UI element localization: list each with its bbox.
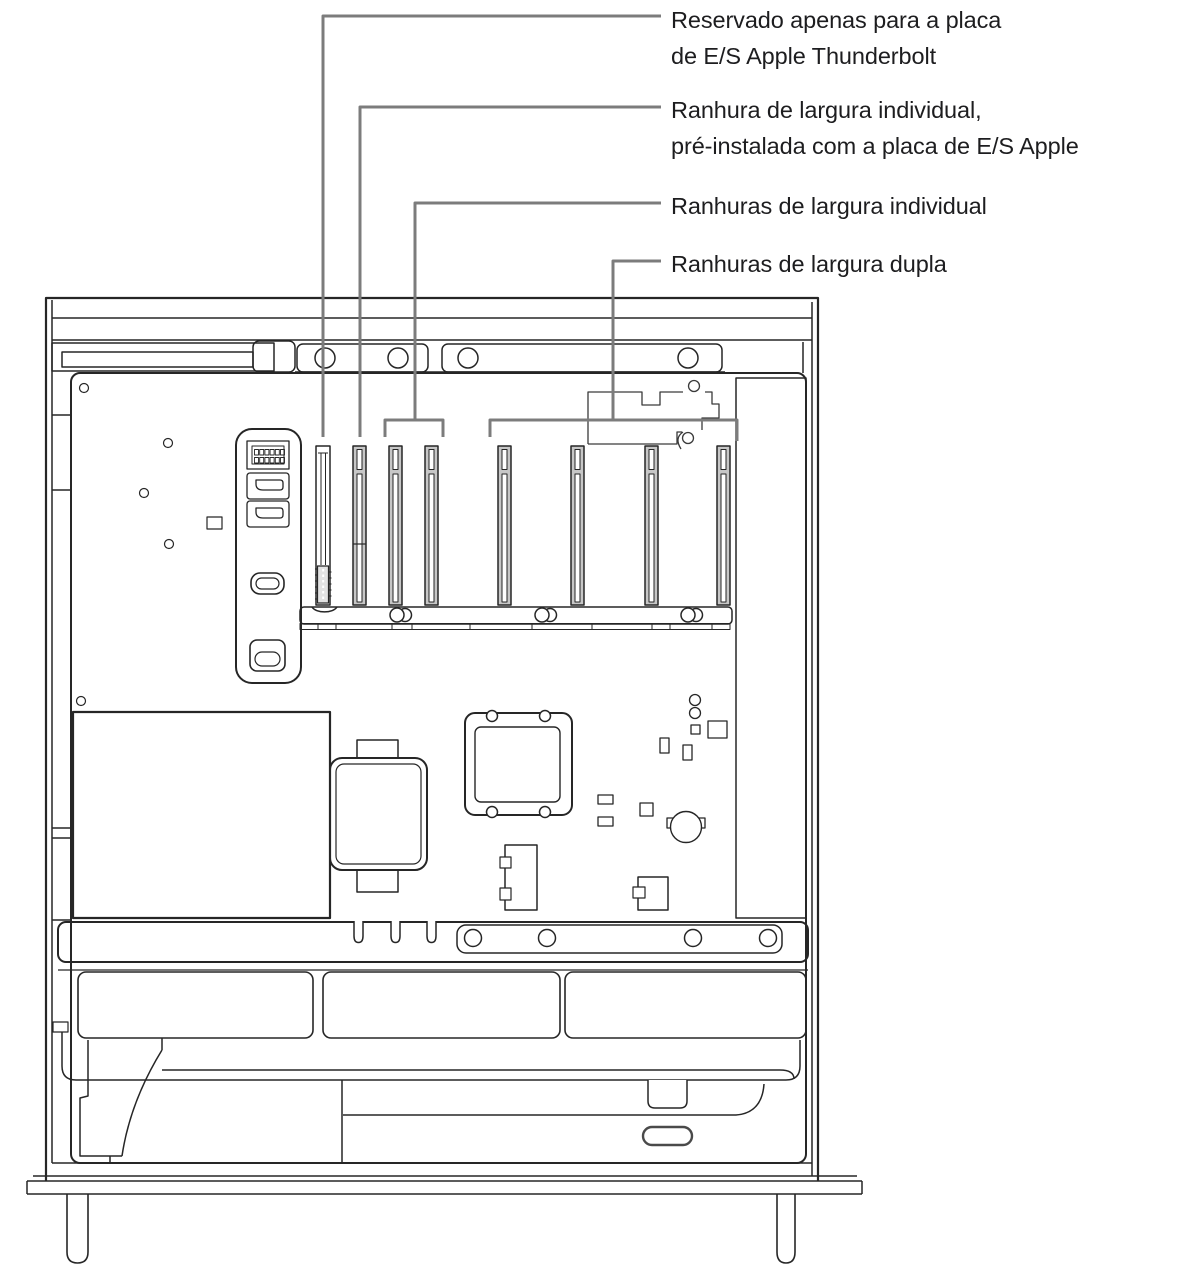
thunderbolt-port	[250, 640, 285, 671]
pcie-slot-4	[425, 446, 438, 605]
foot-right	[777, 1194, 795, 1263]
cpu-plate	[465, 711, 572, 818]
callout-label-line: pré-instalada com a placa de E/S Apple	[671, 128, 1079, 164]
hdmi-port	[247, 501, 289, 527]
callout-label-single-width-preinstalled: Ranhura de largura individual, pré-insta…	[671, 92, 1079, 164]
callout-label-single-width-slots: Ranhuras de largura individual	[671, 188, 987, 224]
callout-label-line: de E/S Apple Thunderbolt	[671, 38, 1001, 74]
lock-pill	[643, 1127, 692, 1145]
slot-rail	[300, 607, 732, 630]
pcie-slot-5	[498, 446, 511, 605]
pcie-slot-6	[571, 446, 584, 605]
callout-label-thunderbolt-reserved: Reservado apenas para a placa de E/S App…	[671, 2, 1001, 74]
callout-bracket-single-slots	[385, 420, 443, 437]
callout-label-line: Ranhura de largura individual,	[671, 92, 1079, 128]
hdmi-port	[247, 473, 289, 499]
pcie-slot-1-thunderbolt	[315, 446, 332, 605]
callout-bracket-double-slots	[490, 420, 737, 441]
io-card	[236, 429, 301, 683]
fan-bays	[78, 972, 806, 1038]
grid-connector	[247, 441, 289, 469]
heatsink-bracket	[330, 740, 427, 892]
callout-lines	[323, 16, 737, 441]
pcie-slot-2	[353, 446, 366, 605]
panel-screw-holes	[77, 384, 223, 706]
mac-pro-side-diagram: Reservado apenas para a placa de E/S App…	[0, 0, 1197, 1269]
feet	[67, 1194, 795, 1263]
callout-label-line: Ranhuras de largura dupla	[671, 246, 947, 282]
pcie-slot-7	[645, 446, 658, 605]
lower-ducting	[52, 1032, 812, 1163]
latch-outline	[588, 381, 719, 450]
power-supply	[73, 712, 330, 918]
rail-screws	[390, 608, 703, 622]
usb-c-port	[251, 573, 284, 594]
base-plinth	[27, 1176, 862, 1194]
pcie-slot-3	[389, 446, 402, 605]
right-column	[736, 378, 806, 918]
mac-pro-illustration	[0, 0, 1197, 1269]
aux-connector	[633, 877, 668, 910]
battery	[667, 812, 705, 843]
bottom-rail	[58, 921, 808, 970]
callout-label-line: Ranhuras de largura individual	[671, 188, 987, 224]
pcie-slot-8	[717, 446, 730, 605]
foot-left	[67, 1194, 88, 1263]
callout-line-single-slots	[415, 203, 661, 419]
top-rail-and-plates	[52, 341, 803, 373]
pcie-slots	[315, 446, 730, 605]
callout-label-double-width-slots: Ranhuras de largura dupla	[671, 246, 947, 282]
callout-line-single-preinstalled	[360, 107, 661, 437]
power-connector	[500, 845, 537, 910]
callout-label-line: Reservado apenas para a placa	[671, 2, 1001, 38]
